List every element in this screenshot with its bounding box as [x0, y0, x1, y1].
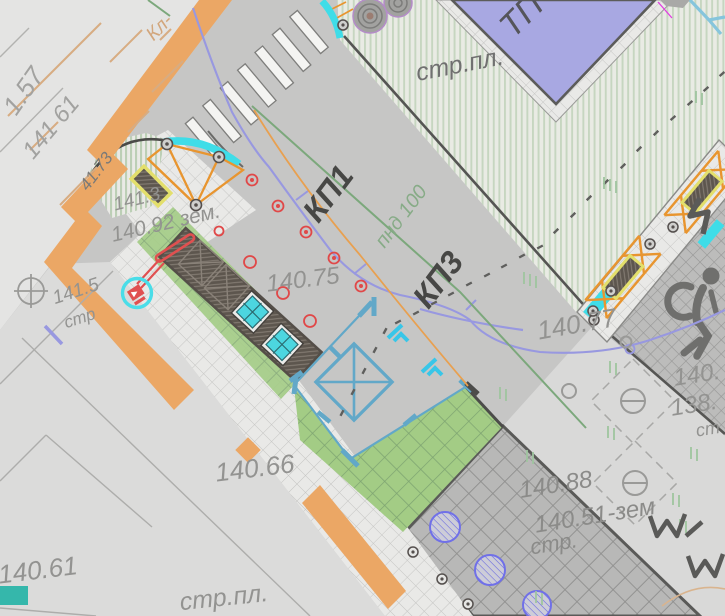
svg-text:ст: ст [694, 417, 721, 441]
